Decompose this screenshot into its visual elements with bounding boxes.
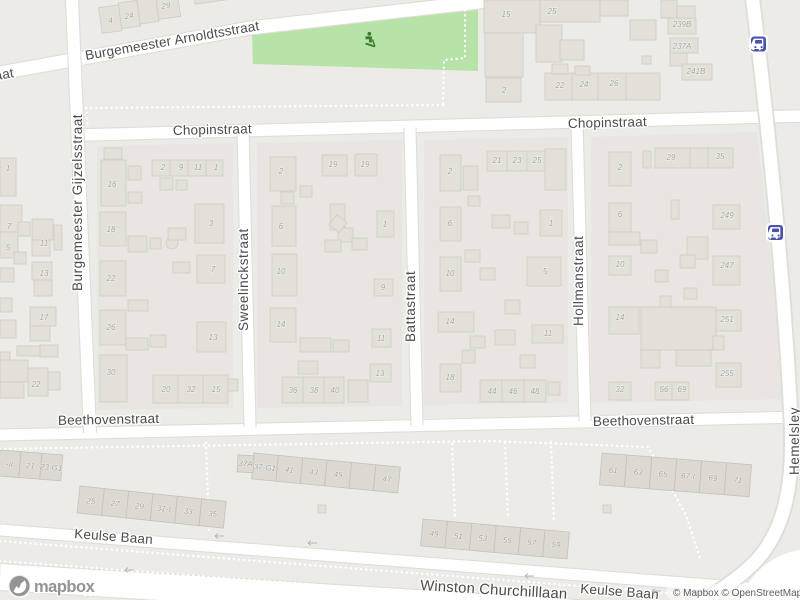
- svg-text:3: 3: [209, 219, 214, 228]
- svg-text:19: 19: [329, 160, 338, 169]
- svg-text:13: 13: [376, 369, 385, 378]
- svg-text:Beethovenstraat: Beethovenstraat: [593, 412, 695, 429]
- svg-text:10: 10: [616, 260, 625, 269]
- svg-text:55: 55: [502, 536, 512, 546]
- svg-text:29: 29: [160, 1, 172, 11]
- svg-text:11: 11: [194, 163, 202, 172]
- svg-text:29: 29: [666, 153, 676, 162]
- svg-text:20: 20: [161, 385, 171, 394]
- svg-text:35: 35: [716, 152, 725, 161]
- svg-text:15: 15: [502, 10, 511, 19]
- svg-text:51: 51: [454, 531, 464, 541]
- svg-text:2: 2: [617, 163, 623, 172]
- svg-text:6: 6: [618, 210, 623, 219]
- svg-text:Hollmanstraat: Hollmanstraat: [571, 236, 586, 326]
- svg-text:22: 22: [31, 380, 41, 389]
- svg-text:6: 6: [279, 222, 284, 231]
- svg-text:9: 9: [179, 163, 184, 172]
- svg-text:57: 57: [527, 538, 537, 548]
- svg-text:11: 11: [544, 329, 552, 338]
- svg-text:40: 40: [331, 386, 340, 395]
- svg-text:1: 1: [549, 219, 553, 228]
- svg-text:69: 69: [708, 473, 718, 483]
- svg-text:2: 2: [447, 167, 453, 176]
- svg-text:71: 71: [733, 475, 743, 485]
- svg-text:31-I: 31-I: [156, 504, 171, 514]
- svg-text:mapbox: mapbox: [34, 578, 96, 596]
- svg-text:41: 41: [284, 465, 294, 475]
- svg-text:56: 56: [660, 385, 669, 394]
- svg-text:10: 10: [277, 267, 286, 276]
- svg-text:69: 69: [678, 385, 687, 394]
- svg-text:2: 2: [278, 167, 284, 176]
- svg-text:13: 13: [40, 269, 49, 278]
- svg-text:65: 65: [658, 470, 668, 480]
- svg-text:251: 251: [719, 315, 733, 324]
- svg-text:Chopinstraat: Chopinstraat: [173, 121, 252, 138]
- svg-text:7: 7: [7, 222, 12, 231]
- svg-text:25: 25: [532, 156, 542, 165]
- svg-text:21: 21: [25, 461, 36, 471]
- svg-text:Sweelinckstraat: Sweelinckstraat: [236, 228, 251, 331]
- svg-text:36: 36: [289, 386, 298, 395]
- svg-text:49: 49: [429, 529, 439, 539]
- svg-text:38: 38: [310, 386, 319, 395]
- svg-text:© Mapbox © OpenStreetMap: © Mapbox © OpenStreetMap: [673, 588, 800, 599]
- svg-text:10: 10: [446, 269, 455, 278]
- svg-text:1: 1: [383, 220, 387, 229]
- svg-text:11: 11: [40, 239, 48, 248]
- svg-text:33: 33: [183, 507, 193, 517]
- svg-text:48: 48: [531, 387, 540, 396]
- svg-text:6: 6: [448, 219, 453, 228]
- svg-text:53: 53: [478, 534, 488, 544]
- svg-text:29: 29: [134, 501, 145, 511]
- svg-text:24: 24: [123, 11, 135, 21]
- svg-text:239B: 239B: [672, 20, 692, 29]
- svg-text:241B: 241B: [686, 67, 706, 76]
- svg-text:61: 61: [608, 466, 618, 476]
- svg-text:67-I: 67-I: [681, 471, 696, 481]
- svg-text:23: 23: [512, 156, 522, 165]
- svg-text:19: 19: [361, 160, 370, 169]
- svg-text:45: 45: [333, 470, 343, 480]
- svg-text:15: 15: [212, 385, 221, 394]
- svg-text:18: 18: [446, 373, 455, 382]
- svg-text:26: 26: [106, 323, 116, 332]
- svg-text:30: 30: [107, 368, 116, 377]
- svg-text:25: 25: [547, 7, 557, 16]
- svg-text:249: 249: [719, 211, 734, 220]
- svg-text:14: 14: [277, 320, 286, 329]
- svg-text:26: 26: [609, 79, 619, 88]
- svg-text:247: 247: [719, 261, 734, 270]
- svg-text:22: 22: [555, 81, 565, 90]
- svg-text:32: 32: [616, 385, 625, 394]
- svg-text:2: 2: [160, 163, 166, 172]
- svg-text:Burgemeester Gijzelsstraat: Burgemeester Gijzelsstraat: [70, 114, 85, 291]
- svg-text:1: 1: [6, 164, 10, 173]
- svg-text:5: 5: [543, 267, 548, 276]
- svg-text:7: 7: [211, 265, 216, 274]
- svg-text:Hemelsley: Hemelsley: [787, 407, 800, 475]
- svg-text:9: 9: [381, 283, 386, 292]
- svg-text:22: 22: [106, 274, 116, 283]
- svg-text:18: 18: [107, 225, 116, 234]
- svg-text:35: 35: [208, 509, 218, 519]
- svg-text:44: 44: [488, 387, 497, 396]
- svg-text:5: 5: [6, 243, 11, 252]
- svg-text:25: 25: [85, 496, 96, 506]
- svg-text:255: 255: [719, 369, 734, 378]
- svg-text:63: 63: [633, 468, 643, 478]
- svg-text:14: 14: [446, 317, 455, 326]
- svg-text:13: 13: [209, 333, 218, 342]
- svg-text:59: 59: [551, 540, 561, 550]
- svg-text:37A: 37A: [238, 459, 253, 469]
- svg-text:21: 21: [492, 156, 502, 165]
- svg-text:Battastraat: Battastraat: [403, 271, 418, 342]
- svg-text:46: 46: [509, 387, 518, 396]
- svg-text:27: 27: [109, 499, 120, 509]
- svg-text:Chopinstraat: Chopinstraat: [568, 114, 647, 131]
- svg-text:47: 47: [382, 474, 392, 484]
- svg-text:17: 17: [40, 313, 49, 322]
- svg-text:Beethovenstraat: Beethovenstraat: [58, 411, 160, 428]
- svg-text:2: 2: [501, 86, 507, 95]
- svg-text:14: 14: [616, 313, 625, 322]
- svg-text:1: 1: [214, 163, 218, 172]
- svg-text:237A: 237A: [672, 42, 692, 51]
- svg-text:16: 16: [108, 180, 117, 189]
- svg-text:43: 43: [309, 467, 319, 477]
- svg-text:32: 32: [187, 385, 196, 394]
- svg-text:11: 11: [377, 334, 385, 343]
- svg-text:24: 24: [579, 80, 589, 89]
- svg-text:23-G1: 23-G1: [39, 462, 63, 473]
